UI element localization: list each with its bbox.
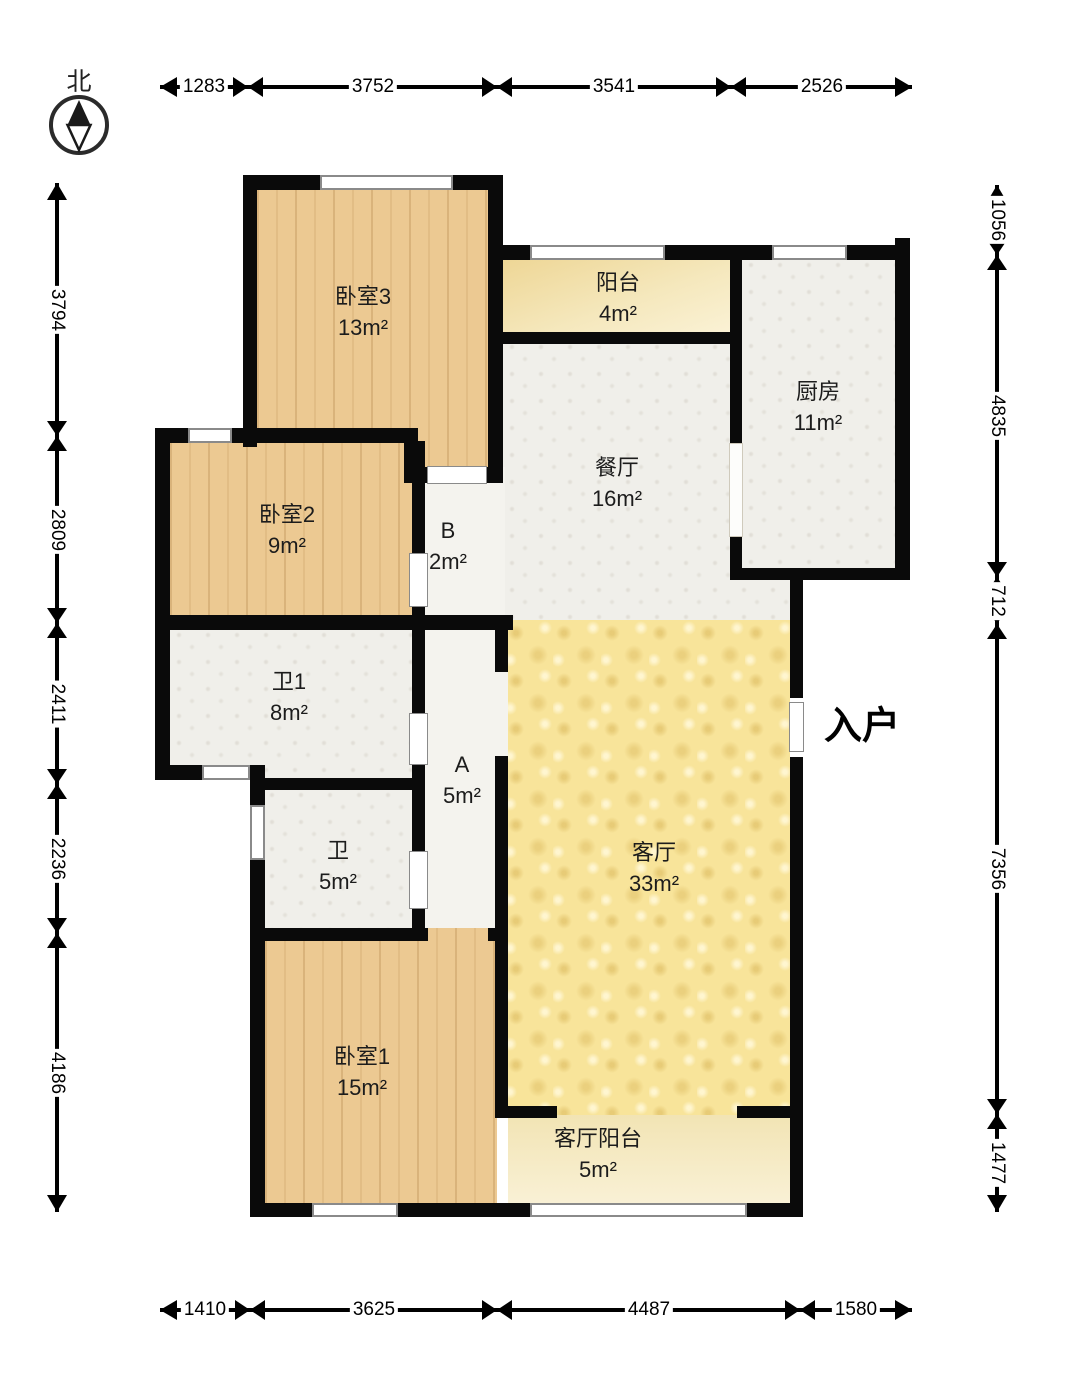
tick-icon <box>987 1099 1007 1114</box>
tick-icon <box>47 918 67 933</box>
dim-label: 1580 <box>832 1299 880 1321</box>
tick-icon <box>716 77 731 97</box>
wall <box>496 332 742 344</box>
dim-label: 712 <box>986 582 1008 620</box>
dim-label: 2236 <box>46 835 68 883</box>
window <box>530 245 665 260</box>
dim-label: 4186 <box>46 1049 68 1097</box>
room-area: 16m² <box>592 483 642 514</box>
tick-icon <box>800 1300 815 1320</box>
room-name: 卫 <box>319 835 357 866</box>
door-bedroom2 <box>409 553 428 607</box>
door-bedroom3 <box>427 466 487 484</box>
arrow-down-icon <box>987 1195 1007 1212</box>
window <box>530 1203 747 1217</box>
door-bath1 <box>409 713 428 765</box>
floor-living-balcony <box>508 1115 790 1205</box>
room-area: 13m² <box>335 312 391 343</box>
tick-icon <box>250 1300 265 1320</box>
dim-label: 3794 <box>46 286 68 334</box>
room-label-bath: 卫 5m² <box>319 835 357 897</box>
room-area: 8m² <box>270 697 308 728</box>
tick-icon <box>47 608 67 623</box>
arrow-right-icon <box>895 77 912 97</box>
entrance-label: 入户 <box>824 695 900 750</box>
wall <box>412 441 425 553</box>
window <box>188 428 232 443</box>
room-name: 阳台 <box>596 267 640 298</box>
door-kitchen <box>729 443 743 537</box>
wall <box>250 928 428 941</box>
wall <box>730 245 742 443</box>
dim-label: 3541 <box>590 76 638 98</box>
wall <box>737 1106 790 1118</box>
tick-icon <box>731 77 746 97</box>
wall <box>730 537 742 570</box>
room-area: 4m² <box>596 298 640 329</box>
tick-icon <box>497 77 512 97</box>
tick-icon <box>235 1300 250 1320</box>
room-area: 5m² <box>319 866 357 897</box>
dim-label: 2526 <box>798 76 846 98</box>
room-name: 卧室3 <box>335 281 391 312</box>
window <box>250 805 265 860</box>
wall <box>495 615 508 672</box>
window <box>772 245 847 260</box>
room-label-hall-a: A 5m² <box>443 749 481 811</box>
wall <box>253 778 412 790</box>
door-entrance <box>789 702 804 752</box>
compass-icon <box>46 92 112 158</box>
arrow-left-icon <box>160 1300 177 1320</box>
room-area: 2m² <box>429 546 467 577</box>
dimension-line <box>995 185 999 1212</box>
dim-label: 1056 <box>986 196 1008 244</box>
dim-label: 7356 <box>986 845 1008 893</box>
tick-icon <box>233 77 248 97</box>
dim-label: 1477 <box>986 1139 1008 1187</box>
wall <box>495 1106 557 1118</box>
room-label-living: 客厅 33m² <box>629 837 679 899</box>
room-label-bedroom3: 卧室3 13m² <box>335 281 391 343</box>
tick-icon <box>987 562 1007 577</box>
tick-icon <box>987 624 1007 639</box>
room-label-dining: 餐厅 16m² <box>592 452 642 514</box>
tick-icon <box>47 784 67 799</box>
wall <box>790 568 803 698</box>
room-name: 餐厅 <box>592 452 642 483</box>
tick-icon <box>482 1300 497 1320</box>
wall <box>488 928 508 941</box>
room-label-kitchen: 厨房 11m² <box>794 376 843 438</box>
wall <box>155 615 513 630</box>
tick-icon <box>47 436 67 451</box>
room-label-bedroom1: 卧室1 15m² <box>334 1041 390 1103</box>
arrow-right-icon <box>895 1300 912 1320</box>
dim-label: 1283 <box>180 76 228 98</box>
wall <box>730 568 910 580</box>
dim-label: 3625 <box>350 1299 398 1321</box>
window <box>320 175 453 190</box>
wall <box>243 175 257 447</box>
wall <box>790 757 803 1217</box>
tick-icon <box>987 1114 1007 1129</box>
room-label-hall-b: B 2m² <box>429 515 467 577</box>
wall <box>488 175 503 483</box>
wall <box>155 428 170 780</box>
dim-label: 2411 <box>46 681 68 728</box>
tick-icon <box>785 1300 800 1320</box>
tick-icon <box>497 1300 512 1320</box>
door-bath <box>409 851 428 909</box>
room-name: 卫1 <box>270 666 308 697</box>
room-name: 客厅 <box>629 837 679 868</box>
wall <box>412 765 425 851</box>
wall <box>895 238 910 580</box>
room-area: 5m² <box>554 1154 642 1185</box>
room-label-living-balcony: 客厅阳台 5m² <box>554 1123 642 1185</box>
room-label-bath1: 卫1 8m² <box>270 666 308 728</box>
room-area: 33m² <box>629 868 679 899</box>
tick-icon <box>248 77 263 97</box>
floor-plan: 卧室3 13m² 阳台 4m² 厨房 11m² 餐厅 16m² 卧室2 9m² … <box>0 0 1065 1393</box>
room-name: 厨房 <box>794 376 843 407</box>
tick-icon <box>987 255 1007 270</box>
room-label-balcony: 阳台 4m² <box>596 267 640 329</box>
room-name: B <box>429 515 467 546</box>
room-name: 卧室2 <box>259 499 315 530</box>
dim-label: 2809 <box>46 506 68 554</box>
room-label-bedroom2: 卧室2 9m² <box>259 499 315 561</box>
arrow-left-icon <box>160 77 177 97</box>
window <box>312 1203 398 1217</box>
room-name: 卧室1 <box>334 1041 390 1072</box>
room-name: 客厅阳台 <box>554 1123 642 1154</box>
dim-label: 1410 <box>181 1299 229 1321</box>
tick-icon <box>47 623 67 638</box>
room-area: 9m² <box>259 530 315 561</box>
dim-label: 4835 <box>986 392 1008 440</box>
dim-label: 4487 <box>625 1299 673 1321</box>
room-name: A <box>443 749 481 780</box>
dim-label: 3752 <box>349 76 397 98</box>
arrow-down-icon <box>47 1195 67 1212</box>
room-area: 5m² <box>443 780 481 811</box>
window <box>202 765 250 780</box>
tick-icon <box>482 77 497 97</box>
tick-icon <box>47 421 67 436</box>
room-area: 15m² <box>334 1072 390 1103</box>
room-area: 11m² <box>794 407 843 438</box>
arrow-up-icon <box>47 183 67 200</box>
tick-icon <box>47 769 67 784</box>
tick-icon <box>47 933 67 948</box>
